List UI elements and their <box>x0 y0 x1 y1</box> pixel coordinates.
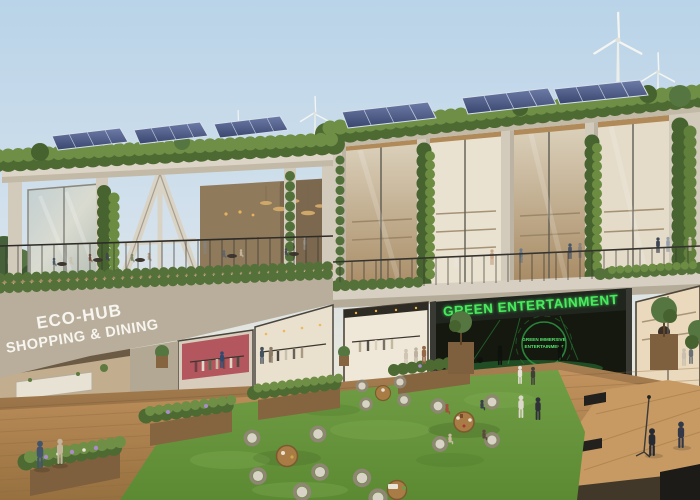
storefront-white-right <box>344 302 428 386</box>
render-image: GREEN IMMERSIVE ENTERTAINMENT GREEN ENTE… <box>0 0 700 500</box>
eco-hub-scene: GREEN IMMERSIVE ENTERTAINMENT GREEN ENTE… <box>0 0 700 500</box>
logo-text-line1: GREEN IMMERSIVE <box>522 337 565 342</box>
stage <box>571 380 700 500</box>
